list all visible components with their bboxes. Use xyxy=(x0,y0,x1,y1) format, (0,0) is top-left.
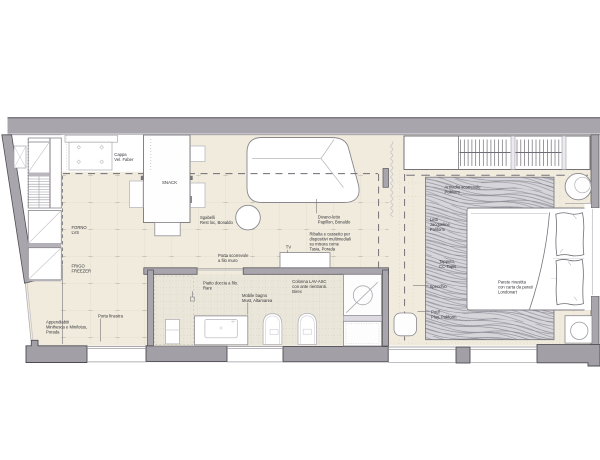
svg-text:TV: TV xyxy=(286,244,292,249)
svg-text:Tappeto,CC-Tapis: Tappeto,CC-Tapis xyxy=(439,259,456,269)
svg-text:SNACK: SNACK xyxy=(162,180,177,185)
svg-text:Porta finestra: Porta finestra xyxy=(98,313,124,318)
svg-text:Specchio: Specchio xyxy=(430,284,448,289)
